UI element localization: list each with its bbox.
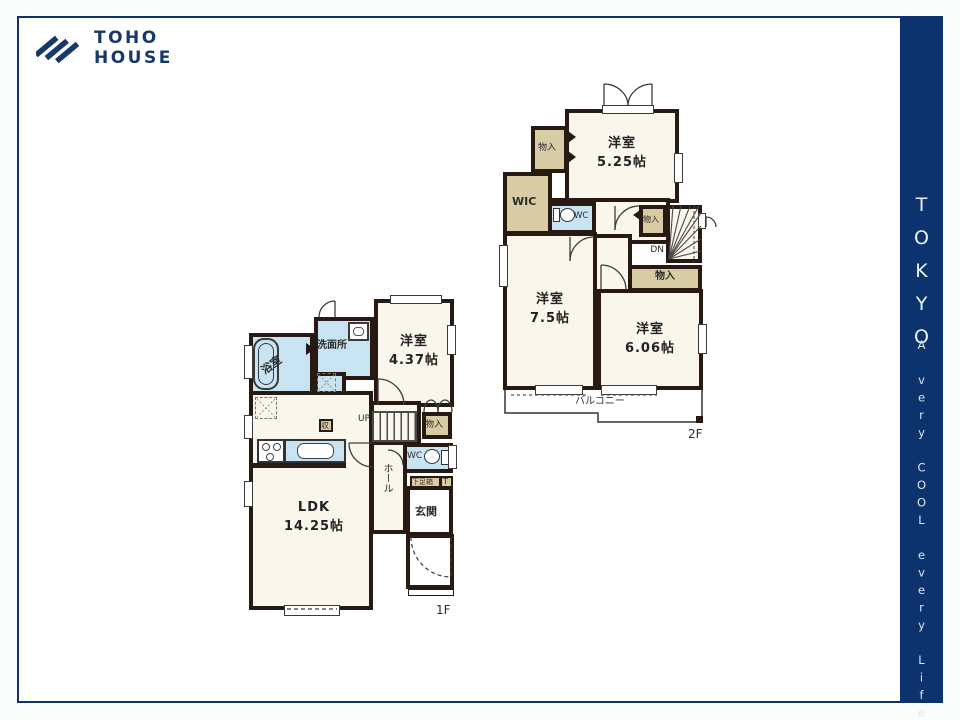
entrance-label: 玄関 — [415, 505, 437, 518]
wc-1f-label: WC — [407, 451, 422, 462]
closet-a-label: 物入 — [538, 143, 556, 154]
side-band: TOKYO A very COOL every Life! — [900, 16, 943, 703]
shoebox-t-label: T — [443, 477, 448, 487]
bedroom-606-name: 洋室 — [608, 321, 692, 340]
bedroom-75-label: 洋室 7.5帖 — [510, 291, 590, 329]
shoebox-label: 下足箱 — [412, 478, 433, 486]
logo-line1: TOHO — [94, 28, 173, 48]
balcony-label: バルコニー — [575, 396, 625, 408]
bedroom-525-size: 5.25帖 — [581, 154, 663, 173]
bedroom-437-size: 4.37帖 — [376, 352, 452, 371]
bedroom-75-size: 7.5帖 — [510, 310, 590, 329]
ldk-name: LDK — [278, 499, 350, 518]
hall-label: ホール — [380, 463, 392, 523]
storage-label: 収 — [321, 421, 329, 431]
bedroom-437-name: 洋室 — [376, 333, 452, 352]
floor1-label: 1F — [436, 603, 451, 617]
stairs-up-label: UP — [352, 414, 370, 425]
floor2-label: 2F — [688, 427, 703, 441]
side-band-title: TOKYO — [911, 194, 933, 359]
ldk-size: 14.25帖 — [278, 518, 350, 537]
company-logo: TOHO HOUSE — [36, 28, 173, 78]
washroom-label: 洗面所 — [317, 340, 373, 352]
flyer-page: TOKYO A very COOL every Life! TOHO HOUSE — [0, 0, 960, 720]
closet-1f-label: 物入 — [425, 420, 443, 431]
side-band-tagline: A very COOL every Life! — [915, 338, 929, 720]
bedroom-525-name: 洋室 — [581, 135, 663, 154]
bedroom-75-name: 洋室 — [510, 291, 590, 310]
bedroom-525-label: 洋室 5.25帖 — [581, 135, 663, 173]
logo-line2: HOUSE — [94, 48, 173, 68]
floor-plan-2f: 洋室 5.25帖 物入 WIC WC 物入 DN 洋室 7.5帖 物入 洋室 6… — [497, 93, 712, 445]
floor-plan-1f: 浴室 洗面所 洋室 4.37帖 LDK 14.25帖 WC ホール 下足箱 T … — [240, 293, 462, 637]
bedroom-606-size: 6.06帖 — [608, 340, 692, 359]
bedroom-437-label: 洋室 4.37帖 — [376, 333, 452, 371]
closet-c-label: 物入 — [640, 271, 690, 283]
content-frame — [17, 16, 943, 703]
ldk-label: LDK 14.25帖 — [278, 499, 350, 537]
stairs-dn-label: DN — [644, 245, 664, 256]
wc-2f-label: WC — [574, 211, 588, 221]
closet-b-label: 物入 — [643, 215, 659, 225]
roof-logo-icon — [36, 28, 84, 78]
bedroom-606-label: 洋室 6.06帖 — [608, 321, 692, 359]
wic-label: WIC — [512, 195, 536, 208]
logo-text: TOHO HOUSE — [94, 28, 173, 69]
